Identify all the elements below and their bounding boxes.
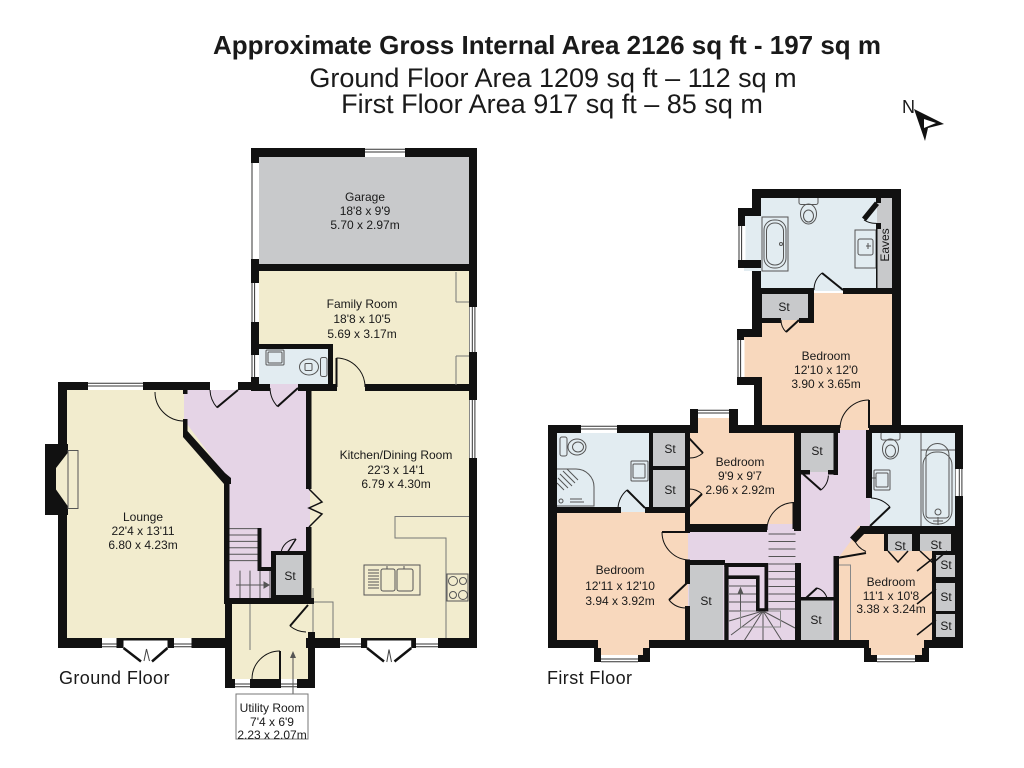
svg-text:St: St xyxy=(930,538,942,552)
svg-text:St: St xyxy=(284,569,296,583)
svg-text:St: St xyxy=(940,619,952,633)
svg-text:St: St xyxy=(778,300,790,314)
svg-text:First Floor Area 917 sq ft – 8: First Floor Area 917 sq ft – 85 sq m xyxy=(341,89,763,119)
svg-text:18'8 x 10'5: 18'8 x 10'5 xyxy=(333,312,391,326)
svg-text:18'8 x 9'9: 18'8 x 9'9 xyxy=(340,204,391,218)
svg-text:First Floor: First Floor xyxy=(547,668,632,688)
svg-text:5.70 x 2.97m: 5.70 x 2.97m xyxy=(330,218,399,232)
svg-text:3.90 x 3.65m: 3.90 x 3.65m xyxy=(791,377,860,391)
svg-text:2.23 x 2.07m: 2.23 x 2.07m xyxy=(237,728,306,742)
svg-text:11'1 x 10'8: 11'1 x 10'8 xyxy=(863,589,920,603)
svg-text:6.80 x 4.23m: 6.80 x 4.23m xyxy=(108,538,177,552)
svg-text:12'11 x 12'10: 12'11 x 12'10 xyxy=(585,579,655,593)
svg-text:Family Room: Family Room xyxy=(327,297,398,311)
svg-text:St: St xyxy=(811,444,823,458)
svg-text:3.94 x 3.92m: 3.94 x 3.92m xyxy=(585,594,654,608)
svg-text:Bedroom: Bedroom xyxy=(802,349,851,363)
svg-text:Lounge: Lounge xyxy=(123,510,163,524)
svg-text:St: St xyxy=(664,483,676,497)
svg-text:St: St xyxy=(664,442,676,456)
svg-text:N: N xyxy=(902,97,915,117)
svg-text:22'4 x 13'11: 22'4 x 13'11 xyxy=(111,524,174,538)
svg-text:St: St xyxy=(940,590,952,604)
svg-text:Eaves: Eaves xyxy=(878,228,892,261)
svg-text:6.79 x 4.30m: 6.79 x 4.30m xyxy=(361,477,430,491)
svg-text:St: St xyxy=(700,594,712,608)
svg-text:Bedroom: Bedroom xyxy=(596,563,645,577)
svg-text:Utility Room: Utility Room xyxy=(240,701,305,715)
svg-text:Garage: Garage xyxy=(345,190,385,204)
svg-text:2.96 x 2.92m: 2.96 x 2.92m xyxy=(705,483,774,497)
svg-text:Approximate Gross Internal Are: Approximate Gross Internal Area 2126 sq … xyxy=(213,30,881,60)
svg-text:Ground Floor: Ground Floor xyxy=(59,668,170,688)
svg-text:St: St xyxy=(894,539,906,553)
svg-text:12'10 x 12'0: 12'10 x 12'0 xyxy=(794,363,858,377)
svg-text:Kitchen/Dining Room: Kitchen/Dining Room xyxy=(340,448,453,462)
svg-text:Bedroom: Bedroom xyxy=(716,455,765,469)
svg-text:22'3 x 14'1: 22'3 x 14'1 xyxy=(367,463,425,477)
svg-text:3.38 x 3.24m: 3.38 x 3.24m xyxy=(856,602,925,616)
svg-text:St: St xyxy=(810,613,822,627)
svg-text:5.69 x 3.17m: 5.69 x 3.17m xyxy=(327,327,396,341)
svg-text:7'4 x 6'9: 7'4 x 6'9 xyxy=(250,715,294,729)
svg-text:Bedroom: Bedroom xyxy=(867,575,916,589)
svg-text:9'9 x 9'7: 9'9 x 9'7 xyxy=(718,469,762,483)
svg-text:St: St xyxy=(940,558,952,572)
